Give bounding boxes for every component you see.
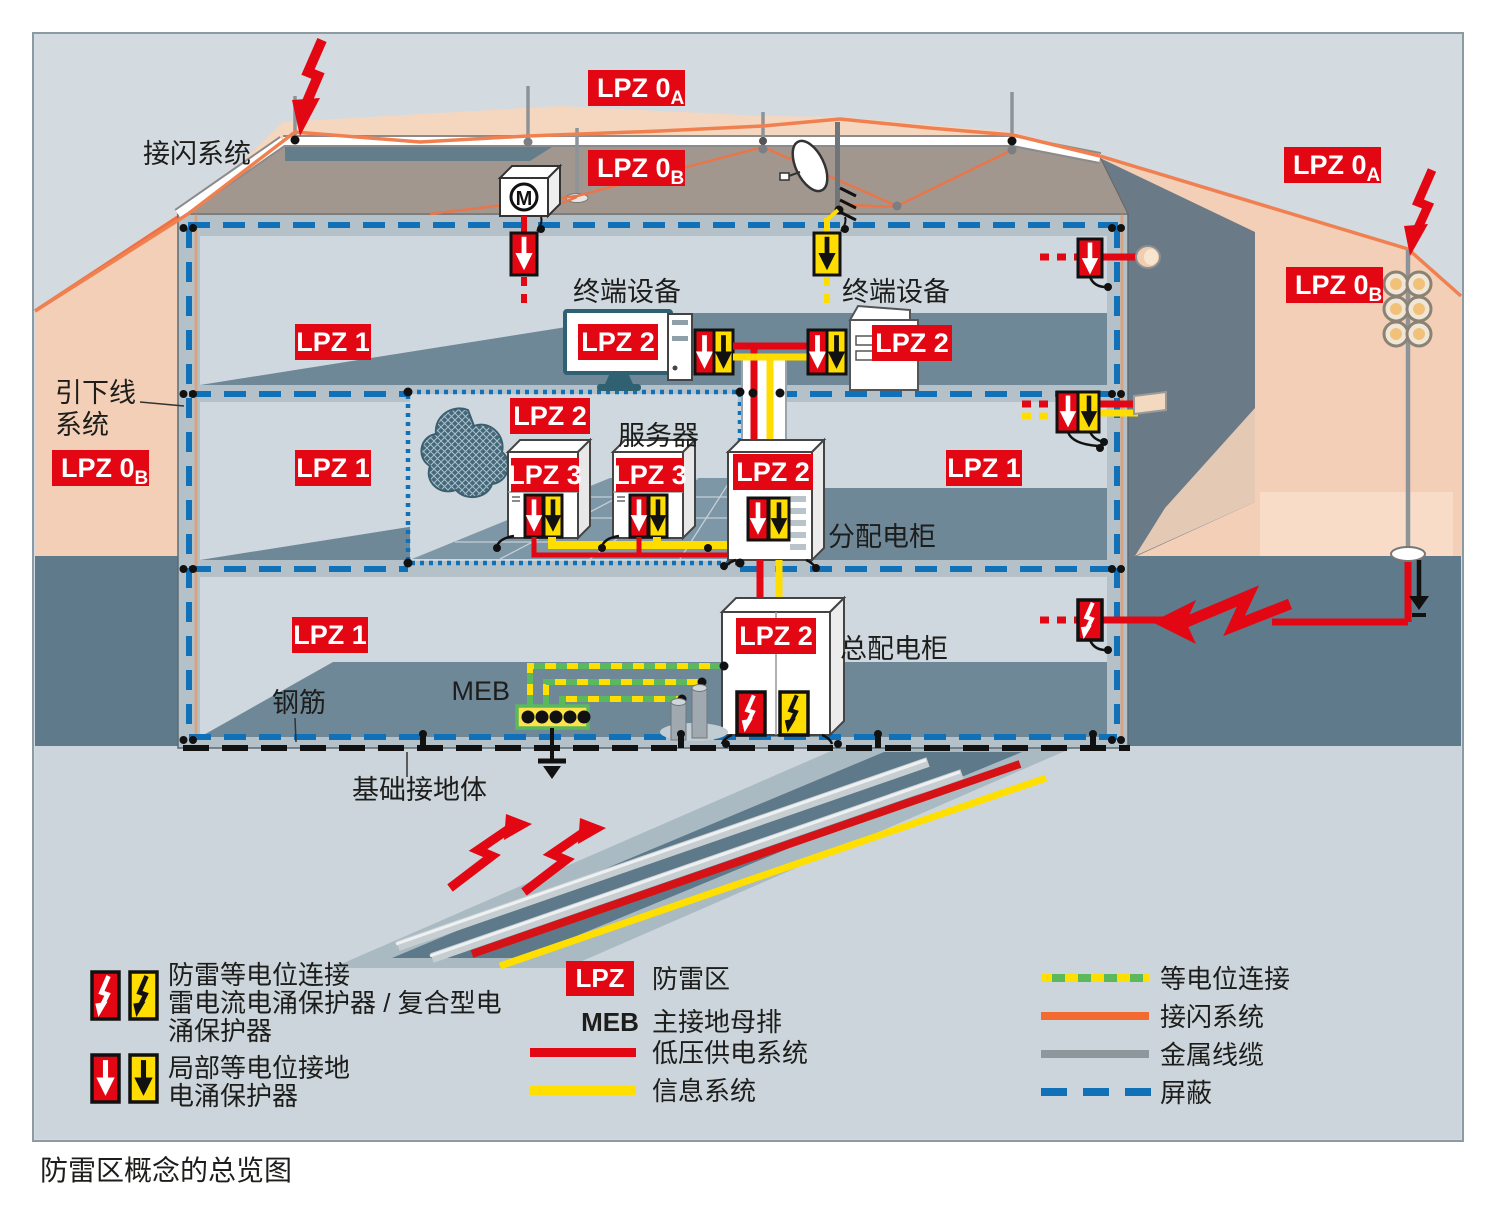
- lpz3-badge-rack1: LPZ 3: [508, 458, 582, 492]
- legend-lv-power-line: [530, 1048, 636, 1057]
- spd-arrester-yellow-icon: [544, 495, 562, 537]
- lpz1-badge-mid-floor: LPZ 1: [295, 450, 371, 486]
- svg-text:LPZ 3: LPZ 3: [508, 460, 582, 490]
- legend-it-label: 信息系统: [652, 1076, 756, 1106]
- lpz2-badge-monitor: LPZ 2: [578, 324, 658, 360]
- terminal-equipment-label-left: 终端设备: [573, 277, 681, 307]
- main-distribution-cabinet-label: 总配电柜: [840, 634, 948, 664]
- legend-meb-label: 主接地母排: [652, 1007, 782, 1037]
- legend-lv-power-label: 低压供电系统: [652, 1038, 808, 1068]
- figure-caption: 防雷区概念的总览图: [40, 1155, 292, 1186]
- spd-arrester-red-icon: [630, 495, 648, 537]
- legend-lpz-badge: LPZ: [566, 961, 634, 996]
- spd-arrester-red-icon: [525, 495, 543, 537]
- lpz2-badge-printer: LPZ 2: [872, 325, 952, 361]
- svg-text:LPZ: LPZ: [575, 963, 624, 993]
- legend-air-termination-line: [1041, 1012, 1149, 1020]
- legend-metal-cable-label: 金属线缆: [1160, 1040, 1264, 1070]
- lpz0b-badge-left: LPZ 0B: [52, 450, 149, 489]
- spd-arrester-yellow-icon: [769, 498, 789, 540]
- motor-label: M: [516, 188, 533, 210]
- lpz1-badge-ground-floor: LPZ 1: [292, 617, 368, 653]
- spd-arrester-yellow-icon: [649, 495, 667, 537]
- rebar-label: 钢筋: [272, 688, 326, 718]
- legend-spd-local-line2: 电涌保护器: [168, 1081, 298, 1111]
- spd-arrester-red-icon: [511, 233, 537, 275]
- svg-text:LPZ 1: LPZ 1: [947, 453, 1021, 483]
- wall-duct: [1134, 392, 1166, 414]
- spd-lightning-yellow-icon: [780, 692, 808, 735]
- lpz0a-badge-right: LPZ 0A: [1284, 147, 1381, 186]
- spd-arrester-red-icon: [808, 330, 827, 374]
- legend-spd-local-line1: 局部等电位接地: [168, 1053, 350, 1083]
- motor-icon: M: [500, 166, 560, 216]
- lpz3-badge-rack2: LPZ 3: [613, 458, 687, 492]
- legend-spd-lightning-line1: 防雷等电位连接: [168, 960, 350, 990]
- legend-shielding-line: [1041, 1088, 1151, 1096]
- legend-air-termination-label: 接闪系统: [1160, 1002, 1264, 1032]
- lpz-overview-diagram: M: [0, 0, 1496, 1205]
- spd-arrester-yellow-icon: [714, 330, 733, 374]
- spd-arrester-red-icon: [748, 498, 768, 540]
- svg-text:LPZ 1: LPZ 1: [296, 453, 370, 483]
- lpz0a-badge-top: LPZ 0A: [588, 70, 685, 109]
- legend-spd-lightning-line3: 涌保护器: [168, 1016, 272, 1046]
- foundation-earth-label: 基础接地体: [352, 775, 487, 805]
- pc-tower-icon: [668, 314, 692, 380]
- svg-text:LPZ 1: LPZ 1: [293, 620, 367, 650]
- svg-text:LPZ 2: LPZ 2: [739, 621, 813, 651]
- svg-text:LPZ 2: LPZ 2: [513, 401, 587, 431]
- svg-text:LPZ 3: LPZ 3: [613, 460, 687, 490]
- svg-text:LPZ 1: LPZ 1: [296, 327, 370, 357]
- meb-label: MEB: [451, 676, 510, 706]
- spd-arrester-yellow-icon: [827, 330, 846, 374]
- distribution-cabinet-label: 分配电柜: [828, 522, 936, 552]
- lpz2-badge-distribution: LPZ 2: [733, 454, 813, 490]
- spd-lightning-red-icon: [737, 692, 765, 735]
- terminal-equipment-label-right: 终端设备: [842, 277, 950, 307]
- legend-lpz-label: 防雷区: [652, 964, 730, 994]
- ground-left: [35, 556, 178, 746]
- svg-text:LPZ 2: LPZ 2: [581, 327, 655, 357]
- lpz2-badge-server-room: LPZ 2: [510, 398, 590, 434]
- svg-text:LPZ 2: LPZ 2: [736, 457, 810, 487]
- legend-metal-cable-line: [1041, 1050, 1149, 1058]
- legend-equipotential-label: 等电位连接: [1160, 964, 1290, 994]
- legend-equipotential-line: [1041, 974, 1149, 982]
- legend-meb-abbr: MEB: [581, 1007, 639, 1037]
- legend-shielding-label: 屏蔽: [1160, 1078, 1212, 1108]
- legend-it-line: [530, 1086, 636, 1095]
- legend-spd-lightning-line2: 雷电流电涌保护器 / 复合型电: [168, 988, 502, 1018]
- diagram-canvas: M: [0, 0, 1496, 1205]
- lpz1-badge-right: LPZ 1: [946, 450, 1022, 486]
- lpz0b-badge-right: LPZ 0B: [1286, 267, 1383, 306]
- spd-arrester-yellow-icon: [814, 233, 840, 275]
- lpz0b-badge-top: LPZ 0B: [588, 150, 685, 189]
- down-conductor-label-1: 引下线: [55, 378, 136, 408]
- server-label: 服务器: [618, 421, 699, 451]
- air-termination-label: 接闪系统: [143, 139, 251, 169]
- lpz2-badge-main: LPZ 2: [736, 618, 816, 654]
- spd-arrester-red-icon: [695, 330, 714, 374]
- down-conductor-label-2: 系统: [55, 410, 109, 440]
- lpz1-badge-top-floor: LPZ 1: [295, 324, 371, 360]
- svg-text:LPZ 2: LPZ 2: [875, 328, 949, 358]
